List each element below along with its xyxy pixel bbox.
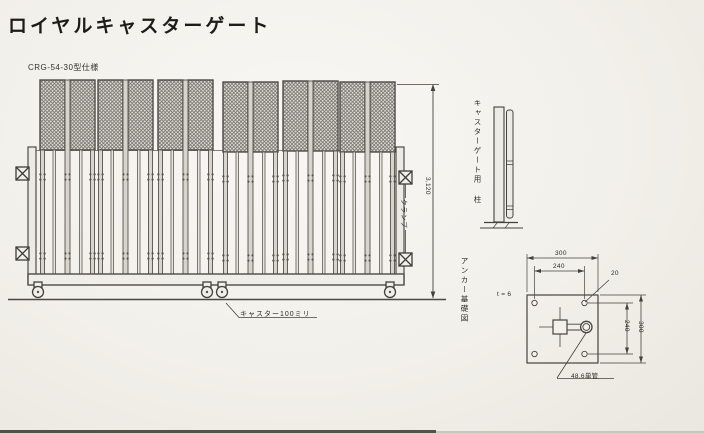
gate-height-dim-text: 3,120 <box>424 177 431 195</box>
plate-thickness-label: t = 6 <box>497 291 511 298</box>
plate-width-dim-text: 300 <box>555 250 567 257</box>
caster-label: キャスター100ミリ <box>240 309 311 319</box>
post-section-square <box>553 320 567 334</box>
gate-panel-units <box>39 80 395 279</box>
bottom-rail <box>28 274 404 285</box>
anchor-base-plan <box>527 254 646 379</box>
hole-span-v-dim-text: 240 <box>623 320 630 332</box>
post-view-label: キャスターゲート用 柱 <box>472 99 483 205</box>
drawing-sheet: ロイヤルキャスターゲート CRG-54-30型仕様 3,120 クランプ キャス… <box>0 0 704 433</box>
pipe-section-circle <box>581 321 592 332</box>
post-side-view <box>480 107 523 228</box>
pipe-label: 48.6単管 <box>571 370 598 380</box>
gate-elevation <box>8 80 446 318</box>
technical-drawing-canvas <box>0 0 704 433</box>
anchor-view-label: アンカー基礎図 <box>459 257 470 324</box>
plate-height-dim-text: 300 <box>637 321 644 333</box>
hole-span-dim-text: 240 <box>553 263 565 270</box>
page-title: ロイヤルキャスターゲート <box>8 11 271 38</box>
model-label: CRG-54-30型仕様 <box>28 62 99 73</box>
clamp-label: クランプ <box>400 199 410 229</box>
hole-dia-dim-text: 20 <box>611 270 619 277</box>
